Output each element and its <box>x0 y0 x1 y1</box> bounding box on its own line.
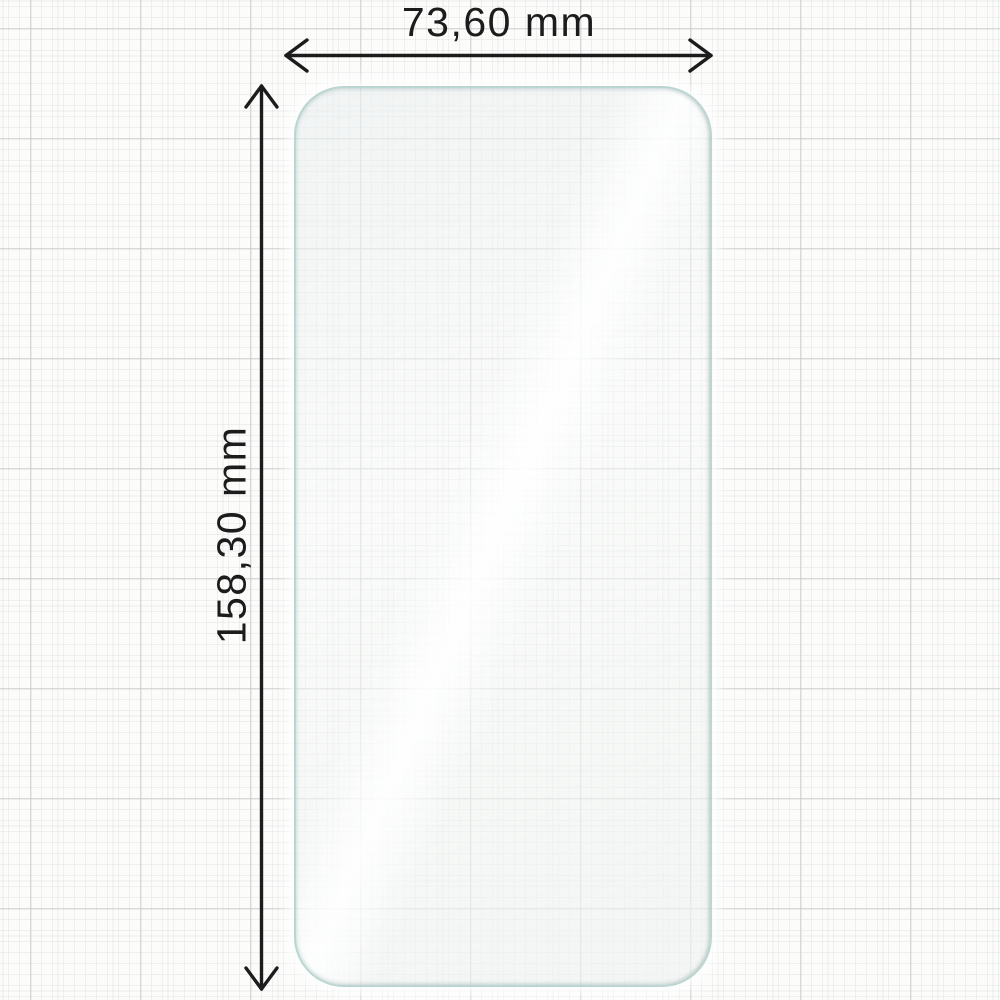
width-dimension-label: 73,60 mm <box>286 2 712 43</box>
graph-paper-background: 73,60 mm 158,30 mm <box>0 0 1000 1000</box>
screen-protector-sheet <box>294 86 712 987</box>
height-dimension-label: 158,30 mm <box>212 426 253 645</box>
